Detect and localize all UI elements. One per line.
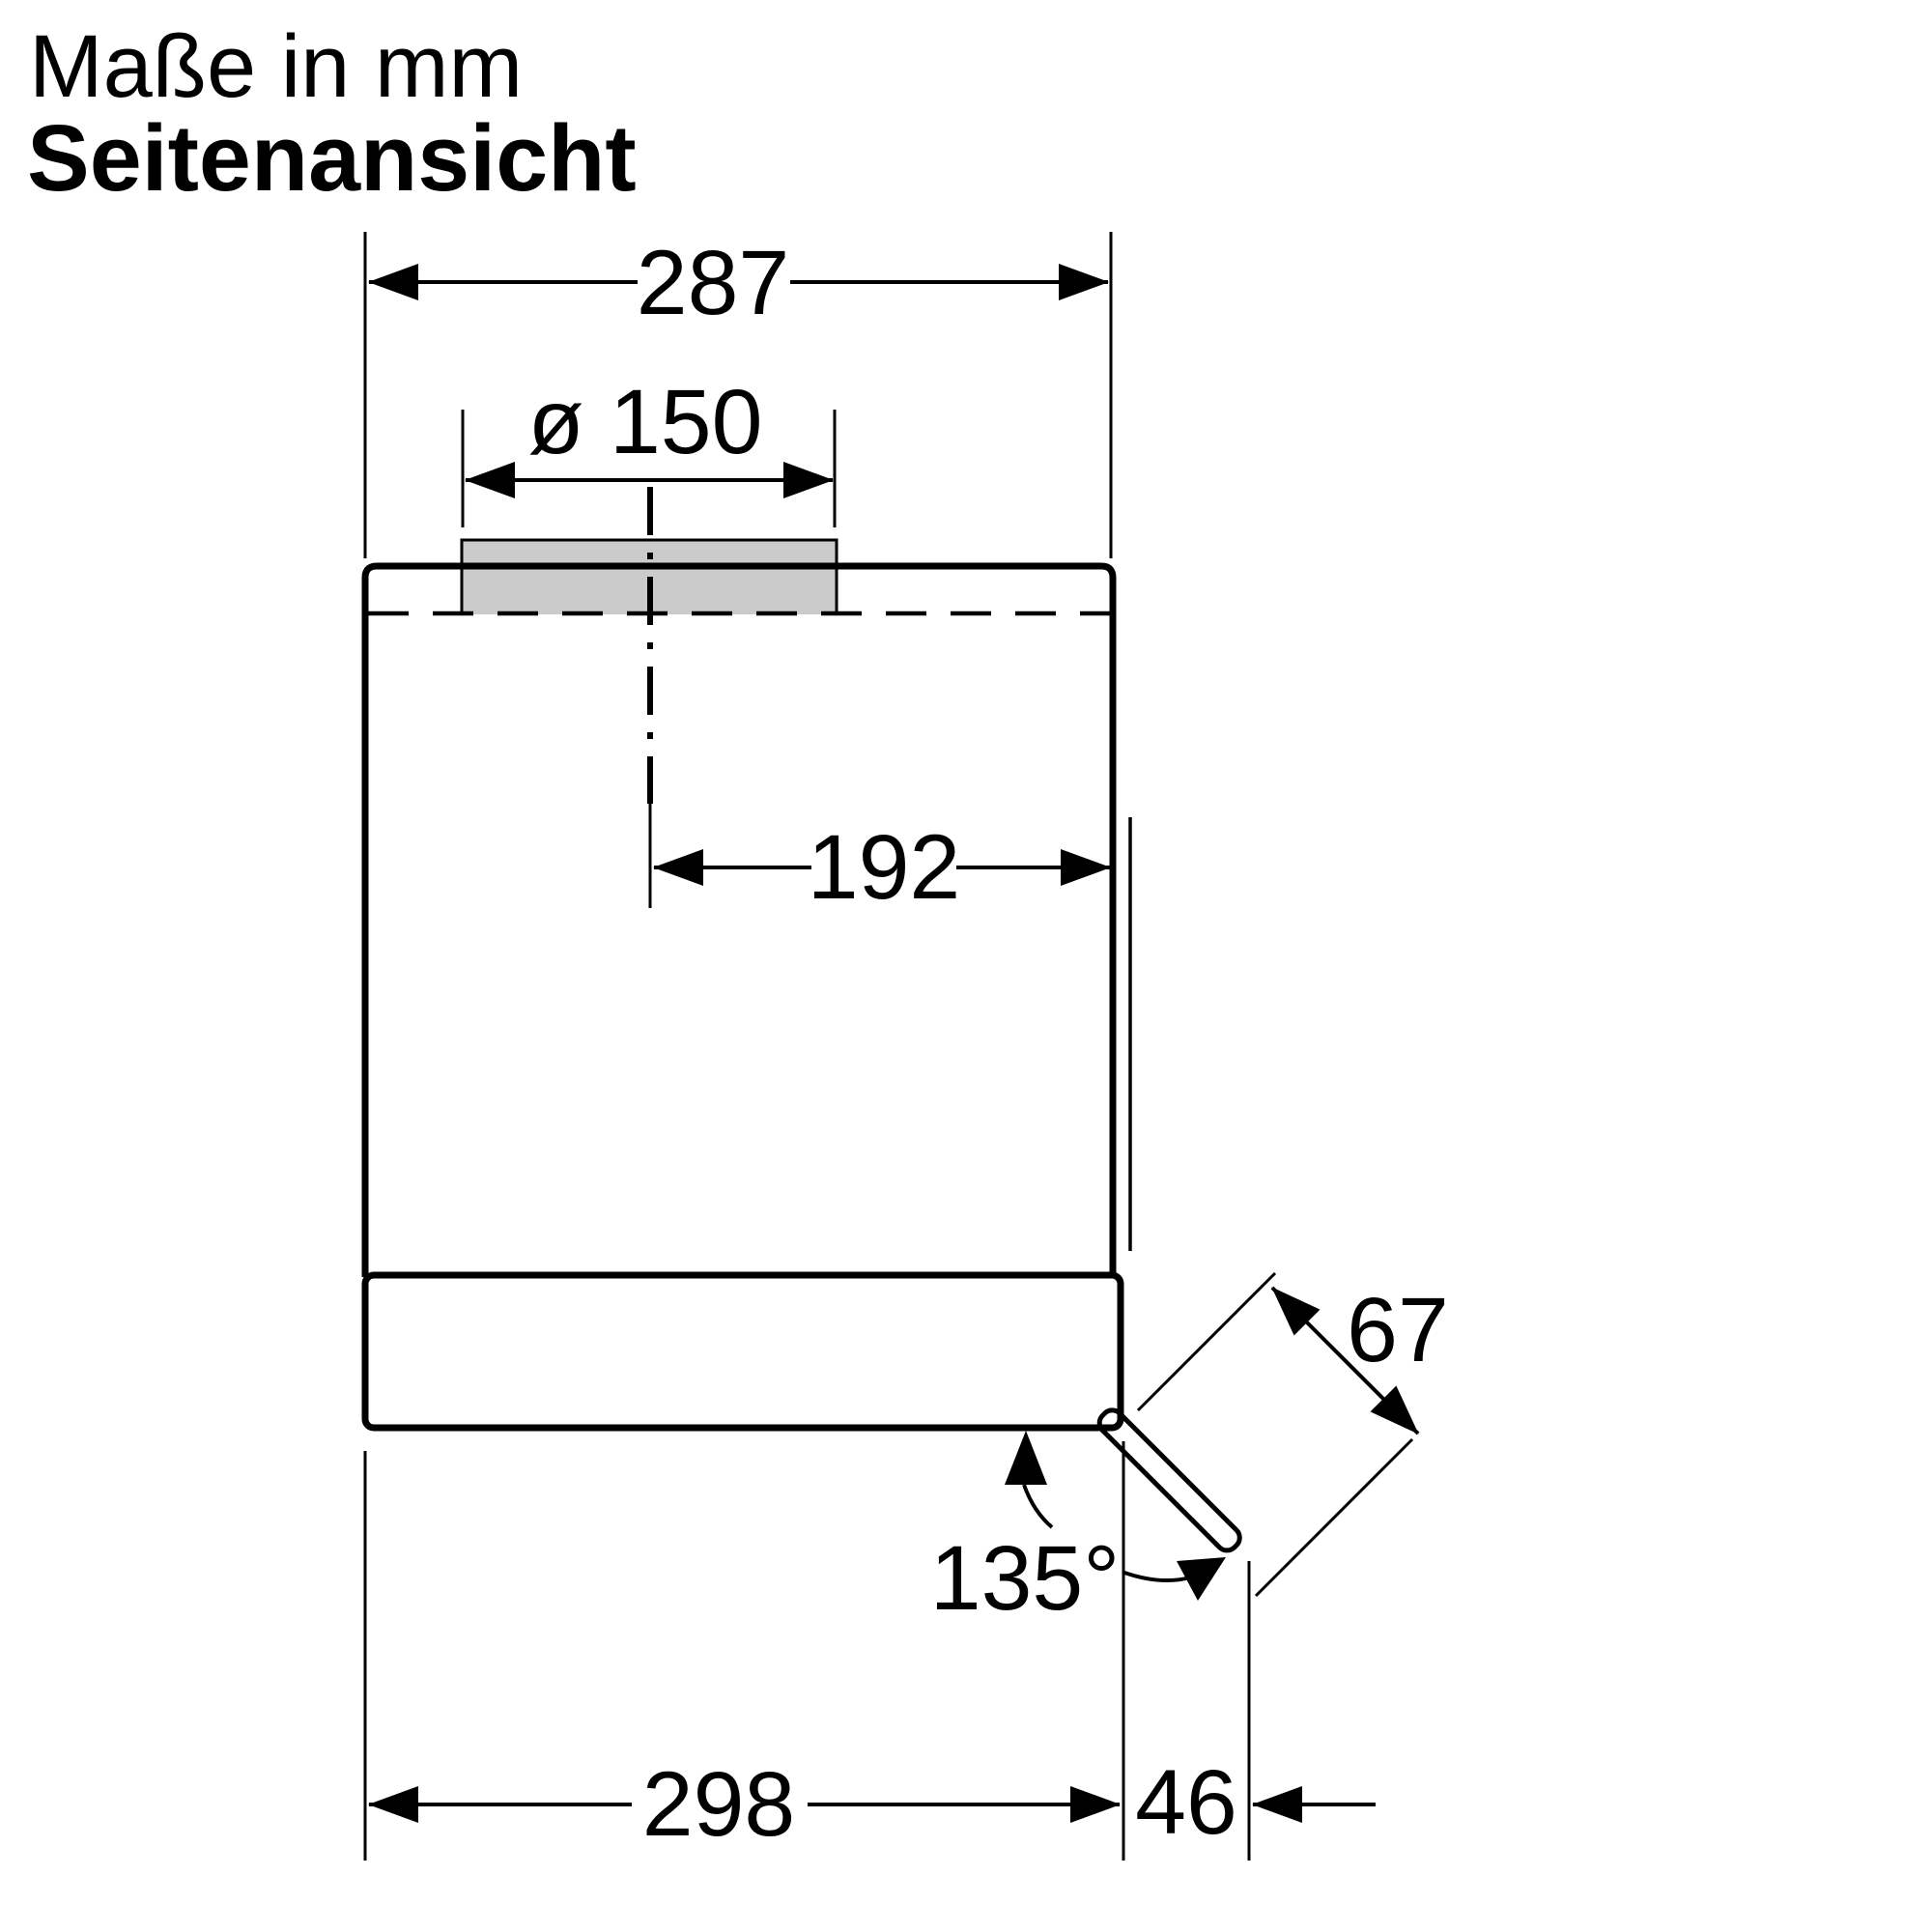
angle-135-up-arc xyxy=(1024,1485,1052,1527)
dim-298-label: 298 xyxy=(642,1753,796,1856)
angle-135-right-arc xyxy=(1124,1573,1190,1580)
dim-287-label: 287 xyxy=(637,232,790,334)
angle-135: 135° xyxy=(930,1431,1226,1630)
dim-67-ext-lower xyxy=(1256,1439,1412,1596)
dim-192: 192 xyxy=(654,816,1110,919)
dimension-drawing-page: Maße in mm Seitenansicht 287 ø 150 192 xyxy=(0,0,1932,1932)
drawing-title: Maße in mm Seitenansicht xyxy=(27,17,637,211)
side-view-diagram: Maße in mm Seitenansicht 287 ø 150 192 xyxy=(0,0,1932,1932)
bottom-panel xyxy=(365,1275,1121,1428)
dim-67: 67 xyxy=(1138,1273,1449,1596)
title-units: Maße in mm xyxy=(29,17,523,116)
dim-298: 298 xyxy=(369,1753,1120,1856)
dim-67-label: 67 xyxy=(1347,1279,1449,1381)
dim-46: 46 xyxy=(1135,1751,1376,1854)
angle-135-up-arrowhead xyxy=(1005,1431,1047,1485)
angle-135-label: 135° xyxy=(930,1527,1121,1630)
title-view: Seitenansicht xyxy=(27,105,637,211)
hood-body-outline xyxy=(365,566,1113,1277)
dim-67-ext-upper xyxy=(1138,1273,1275,1410)
dim-150-label: ø 150 xyxy=(528,371,763,473)
dim-192-label: 192 xyxy=(808,816,961,919)
dim-46-label: 46 xyxy=(1135,1751,1237,1854)
